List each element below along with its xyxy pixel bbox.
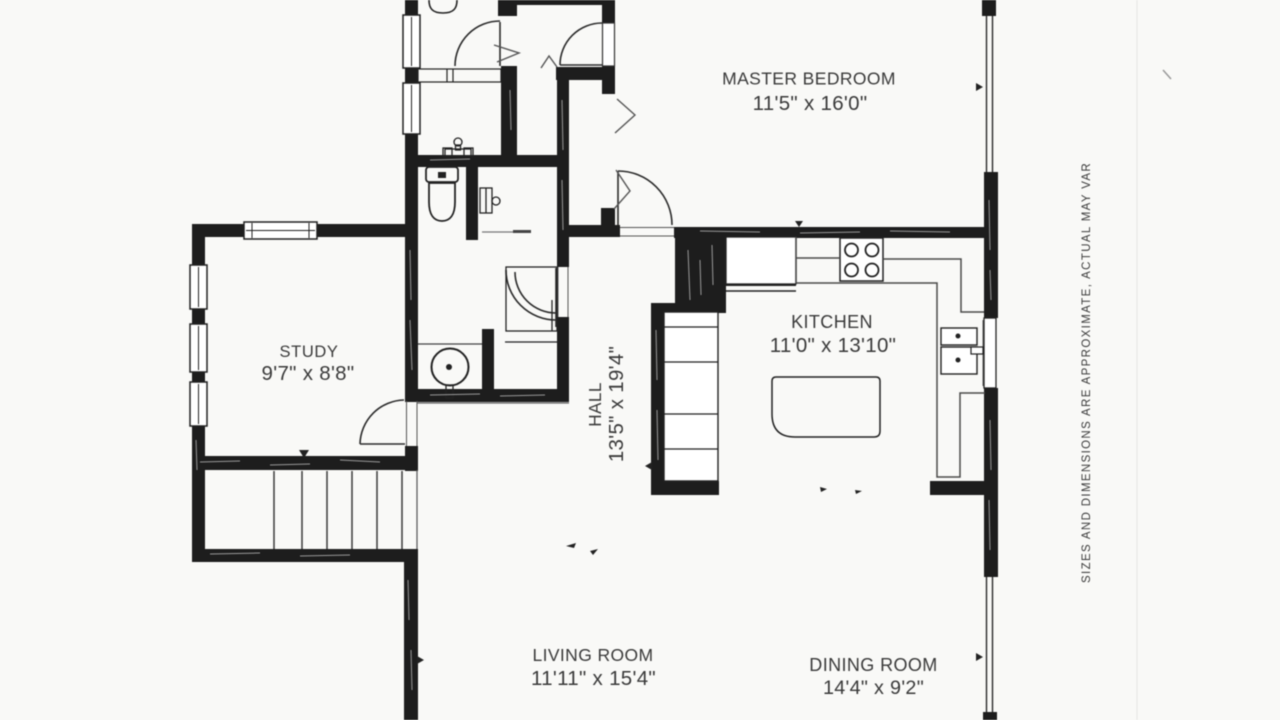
svg-text:11'0" x 13'10": 11'0" x 13'10" xyxy=(770,334,897,357)
svg-text:LIVING ROOM: LIVING ROOM xyxy=(532,645,653,665)
svg-text:11'5" x 16'0": 11'5" x 16'0" xyxy=(753,92,868,115)
svg-text:14'4" x 9'2": 14'4" x 9'2" xyxy=(823,677,924,699)
svg-text:9'7" x 8'8": 9'7" x 8'8" xyxy=(262,362,355,385)
svg-text:MASTER BEDROOM: MASTER BEDROOM xyxy=(722,69,896,89)
svg-text:11'11" x 15'4": 11'11" x 15'4" xyxy=(531,667,656,690)
svg-text:KITCHEN: KITCHEN xyxy=(791,312,873,332)
svg-text:STUDY: STUDY xyxy=(280,343,339,361)
svg-text:HALL: HALL xyxy=(585,382,605,427)
svg-text:13'5" x 19'4": 13'5" x 19'4" xyxy=(605,346,628,462)
svg-text:DINING ROOM: DINING ROOM xyxy=(809,655,937,675)
svg-text:SIZES AND DIMENSIONS ARE APPRO: SIZES AND DIMENSIONS ARE APPROXIMATE, AC… xyxy=(1081,162,1093,583)
